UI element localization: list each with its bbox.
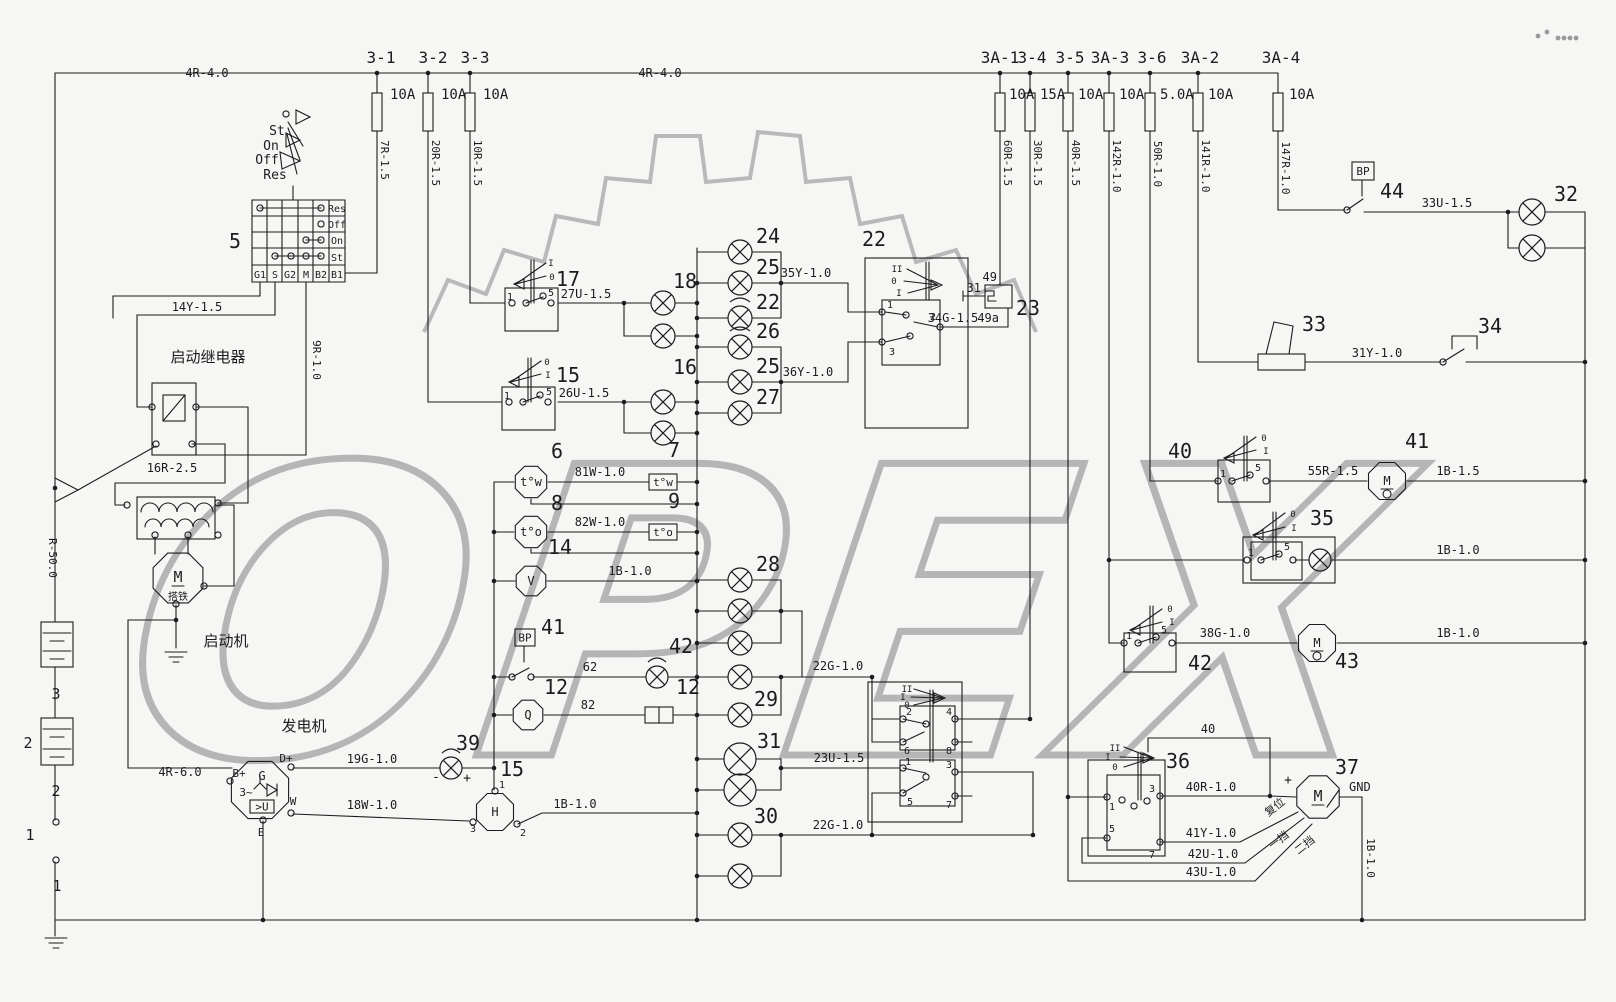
wire-41Y-1.0: 41Y-1.0 bbox=[1186, 826, 1237, 840]
comp-25a: 25 bbox=[756, 255, 780, 279]
svg-text:t°o: t°o bbox=[653, 526, 673, 539]
sw22-I: I bbox=[896, 289, 901, 299]
sw42-I: I bbox=[1169, 618, 1174, 628]
wire-16R-2.5: 16R-2.5 bbox=[147, 461, 198, 475]
comp-26: 26 bbox=[756, 319, 780, 343]
sw42-0: 0 bbox=[1167, 605, 1172, 615]
comp-15sw: 15 bbox=[556, 363, 580, 387]
label-start-relay: 启动继电器 bbox=[170, 348, 245, 366]
wire bbox=[1508, 212, 1519, 248]
fuse bbox=[1104, 73, 1114, 131]
ign-arrow-3 bbox=[280, 152, 300, 169]
wire bbox=[1452, 336, 1477, 349]
tbl-res: Res bbox=[328, 204, 346, 215]
lamp bbox=[1519, 199, 1545, 225]
m37-plus: + bbox=[1284, 773, 1292, 788]
wire-40: 40 bbox=[1201, 722, 1215, 736]
fuse bbox=[423, 73, 433, 131]
junction-dot bbox=[695, 334, 700, 339]
junction-dot bbox=[53, 486, 58, 491]
sw-1: 1 bbox=[52, 877, 61, 895]
junction-dot bbox=[1268, 794, 1273, 799]
ign-pos-res: Res bbox=[263, 168, 286, 183]
junction-dot bbox=[695, 431, 700, 436]
label-ground-strap: 搭铁 bbox=[168, 590, 188, 603]
junction-dot bbox=[1506, 210, 1511, 215]
fuse-3-1-id: 3-1 bbox=[367, 48, 396, 67]
wire-30R-1.5: 30R-1.5 bbox=[1031, 140, 1044, 186]
sw22-pin3: 3 bbox=[889, 347, 895, 358]
fuse bbox=[1273, 73, 1283, 131]
comp-8: 8 bbox=[551, 491, 563, 515]
wire-43U-1.0: 43U-1.0 bbox=[1186, 865, 1237, 879]
sw40-0: 0 bbox=[1261, 434, 1266, 444]
wire-55R-1.5: 55R-1.5 bbox=[1308, 464, 1359, 478]
lamp bbox=[651, 291, 675, 315]
comp-39: 39 bbox=[456, 731, 480, 755]
wire-36Y-1.0: 36Y-1.0 bbox=[783, 365, 834, 379]
horn-base bbox=[1258, 354, 1305, 370]
contact bbox=[540, 293, 546, 299]
junction-dot bbox=[695, 301, 700, 306]
battery-box-3 bbox=[41, 622, 73, 667]
wire-142R-1.0: 142R-1.0 bbox=[1110, 140, 1123, 193]
tbl-s: S bbox=[272, 270, 278, 281]
bat-3: 3 bbox=[51, 685, 60, 703]
junction-dot bbox=[779, 609, 784, 614]
wire bbox=[885, 336, 910, 342]
sw35-I: I bbox=[1291, 524, 1296, 534]
fuse-3A-3-id: 3A-3 bbox=[1091, 48, 1130, 67]
lsw-pin3: 3 bbox=[946, 760, 952, 771]
wire-38G-1.0: 38G-1.0 bbox=[1200, 626, 1251, 640]
gen-e: E bbox=[258, 826, 265, 839]
wire bbox=[904, 281, 938, 285]
junction-dot bbox=[695, 579, 700, 584]
wire-81W-1.0: 81W-1.0 bbox=[575, 465, 626, 479]
sw40-I: I bbox=[1263, 447, 1268, 457]
sw42-pin1: 1 bbox=[1126, 631, 1132, 642]
comp-9: 9 bbox=[668, 489, 680, 513]
contact bbox=[53, 857, 59, 863]
junction-dot bbox=[622, 301, 627, 306]
lamp bbox=[651, 324, 675, 348]
junction-dot bbox=[695, 874, 700, 879]
contact bbox=[283, 111, 289, 117]
wire bbox=[986, 291, 996, 301]
flasher-49a: 49a bbox=[977, 311, 999, 325]
fuse bbox=[995, 73, 1005, 131]
gen-dplus: D+ bbox=[279, 752, 293, 765]
wire-9R-1.0: 9R-1.0 bbox=[310, 340, 323, 380]
wire-27U-1.5: 27U-1.5 bbox=[561, 287, 612, 301]
ground-symbol bbox=[45, 938, 67, 948]
svg-text:M: M bbox=[1383, 474, 1390, 488]
wire-82W-1.0: 82W-1.0 bbox=[575, 515, 626, 529]
comp-44: 44 bbox=[1380, 179, 1404, 203]
comp-41m: 41 bbox=[1405, 429, 1429, 453]
junction-dot bbox=[779, 833, 784, 838]
sw36-II: II bbox=[1110, 744, 1121, 754]
bp-box-44: BP bbox=[1352, 162, 1374, 180]
wire bbox=[345, 131, 377, 273]
lamp bbox=[728, 864, 752, 888]
junction-dot bbox=[1148, 71, 1153, 76]
sw15-pin1: 1 bbox=[504, 391, 510, 402]
fuse-3A-4-rating: 10A bbox=[1289, 87, 1315, 103]
sw42-pin5: 5 bbox=[1161, 625, 1167, 636]
sw36-I: I bbox=[1105, 753, 1110, 763]
fuse-3-3-id: 3-3 bbox=[461, 48, 490, 67]
wire-40R-1.5: 40R-1.5 bbox=[1069, 140, 1082, 186]
comp-29: 29 bbox=[754, 687, 778, 711]
fuse-3-1-rating: 10A bbox=[390, 87, 416, 103]
ign-arrow-1 bbox=[296, 110, 310, 124]
wire bbox=[55, 490, 78, 502]
junction-dot bbox=[695, 551, 700, 556]
wire-33U-1.5: 33U-1.5 bbox=[1422, 196, 1473, 210]
comp-6: 6 bbox=[551, 439, 563, 463]
junction-dot bbox=[1583, 641, 1588, 646]
flasher-31: 31 bbox=[967, 281, 981, 295]
fuse-3A-1-id: 3A-1 bbox=[981, 48, 1020, 67]
sw17-I: I bbox=[548, 259, 553, 269]
comp-43: 43 bbox=[1335, 649, 1359, 673]
lamp39-plus: + bbox=[463, 771, 471, 786]
junction-dot bbox=[870, 833, 875, 838]
wire-35Y-1.0: 35Y-1.0 bbox=[781, 266, 832, 280]
junction-dot bbox=[695, 411, 700, 416]
contact bbox=[548, 300, 554, 306]
tbl-off: Off bbox=[328, 220, 346, 231]
fuse-3A-1-rating: 10A bbox=[1009, 87, 1035, 103]
comp-42sw: 42 bbox=[1188, 651, 1212, 675]
lamp39-minus: - bbox=[432, 770, 440, 785]
junction-dot bbox=[695, 833, 700, 838]
lamp bbox=[728, 240, 752, 264]
wire-R-50.0: R-50.0 bbox=[46, 538, 59, 578]
lsw-pin6: 6 bbox=[904, 746, 910, 757]
junction-dot bbox=[375, 71, 380, 76]
tbl-g2: G2 bbox=[284, 270, 296, 281]
junction-dot bbox=[622, 400, 627, 405]
gauge-box-7: t°w bbox=[649, 474, 677, 490]
comp-22l: 22 bbox=[756, 290, 780, 314]
wire bbox=[1443, 349, 1464, 362]
junction-dot bbox=[695, 641, 700, 646]
wire-60R-1.5: 60R-1.5 bbox=[1001, 140, 1014, 186]
sw17-0: 0 bbox=[549, 273, 554, 283]
lsw-pin5: 5 bbox=[907, 797, 913, 808]
gen-g: G bbox=[258, 769, 265, 783]
junction-dot bbox=[870, 675, 875, 680]
comp-5: 5 bbox=[229, 229, 241, 253]
fuse-3A-2-rating: 10A bbox=[1208, 87, 1234, 103]
junction-dot bbox=[998, 71, 1003, 76]
fuse-3-5-rating: 10A bbox=[1078, 87, 1104, 103]
wire bbox=[624, 303, 651, 336]
comp-12r: 12 bbox=[676, 675, 700, 699]
junction-dot bbox=[695, 757, 700, 762]
sw17-pin5: 5 bbox=[548, 288, 554, 299]
svg-text:t°o: t°o bbox=[520, 525, 542, 539]
junction-dot bbox=[695, 918, 700, 923]
battery-cell bbox=[43, 651, 71, 659]
lamp bbox=[728, 298, 752, 330]
junction-dot bbox=[695, 480, 700, 485]
junction-dot bbox=[1066, 795, 1071, 800]
contact bbox=[53, 819, 59, 825]
wire-26U-1.5: 26U-1.5 bbox=[559, 386, 610, 400]
wire-4R-4.0-a: 4R-4.0 bbox=[185, 66, 228, 80]
wire-19G-1.0: 19G-1.0 bbox=[347, 752, 398, 766]
wire-22G-1.0-a: 22G-1.0 bbox=[813, 659, 864, 673]
comp-15h: 15 bbox=[500, 757, 524, 781]
comp-36: 36 bbox=[1166, 749, 1190, 773]
junction-dot bbox=[261, 918, 266, 923]
wire-50R-1.0: 50R-1.0 bbox=[1151, 141, 1164, 187]
sw36-pin5: 5 bbox=[1109, 824, 1115, 835]
fuse-3-6-rating: 5.0A bbox=[1160, 87, 1194, 103]
sw22-pin1: 1 bbox=[887, 300, 893, 311]
horn-33 bbox=[1266, 322, 1293, 354]
fuse-3A-2-id: 3A-2 bbox=[1181, 48, 1220, 67]
comp-25b: 25 bbox=[756, 354, 780, 378]
junction-dot bbox=[695, 609, 700, 614]
junction-dot bbox=[695, 530, 700, 535]
lsw-pin2: 2 bbox=[906, 707, 912, 718]
sw17-pin1: 1 bbox=[507, 292, 513, 303]
comp-12q: 12 bbox=[544, 675, 568, 699]
wire-62: 62 bbox=[583, 660, 597, 674]
svg-text:t°w: t°w bbox=[520, 475, 542, 489]
fuse-3-6-id: 3-6 bbox=[1138, 48, 1167, 67]
sw36-0: 0 bbox=[1112, 763, 1117, 773]
junction-dot bbox=[1360, 918, 1365, 923]
comp-30: 30 bbox=[754, 804, 778, 828]
fuse bbox=[1193, 73, 1203, 131]
wire-18W-1.0: 18W-1.0 bbox=[347, 798, 398, 812]
comp-18: 18 bbox=[673, 269, 697, 293]
fuse-3-5-id: 3-5 bbox=[1056, 48, 1085, 67]
svg-text:BP: BP bbox=[518, 632, 532, 645]
svg-text:>U: >U bbox=[255, 801, 268, 814]
junction-dot bbox=[695, 380, 700, 385]
sw22-0: 0 bbox=[891, 277, 896, 287]
label-starter: 启动机 bbox=[203, 632, 248, 650]
bat-2-left: 2 bbox=[23, 734, 32, 752]
junction-dot bbox=[695, 316, 700, 321]
h-pin3: 3 bbox=[470, 824, 476, 835]
sw15-pin5: 5 bbox=[546, 387, 552, 398]
battery-cell bbox=[43, 729, 71, 737]
junction-dot bbox=[468, 71, 473, 76]
svg-text:t°w: t°w bbox=[653, 476, 673, 489]
junction-dot bbox=[426, 71, 431, 76]
svg-text:V: V bbox=[527, 574, 534, 588]
ign-pos-on: On bbox=[263, 139, 279, 154]
tbl-m: M bbox=[303, 270, 309, 281]
gauge-box-9: t°o bbox=[649, 524, 677, 540]
junction-dot bbox=[1583, 558, 1588, 563]
comp-37: 37 bbox=[1335, 755, 1359, 779]
svg-text:H: H bbox=[491, 805, 498, 819]
junction-dot bbox=[1196, 71, 1201, 76]
wire-20R-1.5: 20R-1.5 bbox=[429, 140, 442, 186]
comp-7: 7 bbox=[668, 438, 680, 462]
comp-27: 27 bbox=[756, 385, 780, 409]
tbl-on: On bbox=[331, 236, 343, 247]
junction-dot bbox=[779, 380, 784, 385]
wire-34G-1.5: 34G-1.5 bbox=[928, 311, 979, 325]
battery-box-2 bbox=[41, 718, 73, 765]
sw36-pin1: 1 bbox=[1109, 802, 1115, 813]
sw-1-left: 1 bbox=[25, 826, 34, 844]
junction-dot bbox=[1028, 71, 1033, 76]
wire-1B-1.5: 1B-1.5 bbox=[1436, 464, 1479, 478]
wire bbox=[55, 478, 78, 490]
wire-31Y-1.0: 31Y-1.0 bbox=[1352, 346, 1403, 360]
lsw-pin7: 7 bbox=[946, 800, 952, 811]
junction-dot bbox=[1583, 479, 1588, 484]
wire-40R-1.0: 40R-1.0 bbox=[1186, 780, 1237, 794]
fuse-3A-4-id: 3A-4 bbox=[1262, 48, 1301, 67]
label-generator: 发电机 bbox=[281, 717, 326, 735]
fuse-3A-3-rating: 10A bbox=[1119, 87, 1145, 103]
sw35-0: 0 bbox=[1290, 510, 1295, 520]
junction-dot bbox=[779, 675, 784, 680]
junction-dot bbox=[492, 713, 497, 718]
wire bbox=[781, 283, 882, 312]
lsw-pin8: 8 bbox=[946, 746, 952, 757]
junction-dot bbox=[695, 502, 700, 507]
junction-dot bbox=[779, 281, 784, 286]
lamp bbox=[728, 271, 752, 295]
junction-dot bbox=[695, 811, 700, 816]
junction-dot bbox=[1066, 71, 1071, 76]
junction-dot bbox=[174, 618, 179, 623]
sw15-I: I bbox=[545, 371, 550, 381]
comp-32: 32 bbox=[1554, 182, 1578, 206]
wire-1B-1.0-h: 1B-1.0 bbox=[553, 797, 596, 811]
wire-1B-1.0-37: 1B-1.0 bbox=[1364, 838, 1377, 878]
comp-40sw: 40 bbox=[1168, 439, 1192, 463]
junction-dot bbox=[695, 345, 700, 350]
wire-10R-1.5: 10R-1.5 bbox=[471, 140, 484, 186]
fuse bbox=[1145, 73, 1155, 131]
ign-pos-st: St bbox=[269, 124, 285, 139]
sw15-0: 0 bbox=[544, 358, 549, 368]
ign-pos-off: Off bbox=[255, 153, 278, 168]
schematic-page: OPEXt°wt°oBPBP>UMHt°wt°oVQMMM4R-4.04R-4.… bbox=[0, 0, 1616, 1002]
junction-dot bbox=[695, 713, 700, 718]
lsw-pin4: 4 bbox=[946, 707, 952, 718]
svg-text:M: M bbox=[1313, 787, 1322, 805]
tbl-b2: B2 bbox=[315, 270, 327, 281]
junction-dot bbox=[492, 530, 497, 535]
junction-dot bbox=[695, 400, 700, 405]
junction-dot bbox=[492, 766, 497, 771]
battery-cell bbox=[43, 749, 71, 757]
junction-dot bbox=[1031, 833, 1036, 838]
sw22-II: II bbox=[892, 265, 903, 275]
comp-42lamp: 42 bbox=[669, 634, 693, 658]
junction-dot bbox=[492, 675, 497, 680]
watermark-text: OPEX bbox=[101, 384, 1440, 850]
wire-1B-1.0-43: 1B-1.0 bbox=[1436, 626, 1479, 640]
contact bbox=[318, 221, 324, 227]
lsw-pin1: 1 bbox=[905, 757, 911, 768]
svg-text:M: M bbox=[173, 568, 182, 586]
wiring-diagram: OPEXt°wt°oBPBP>UMHt°wt°oVQMMM4R-4.04R-4.… bbox=[0, 0, 1616, 1002]
gen-bplus: B+ bbox=[232, 767, 246, 780]
wire bbox=[907, 269, 938, 285]
bat-2: 2 bbox=[51, 782, 60, 800]
comp-31: 31 bbox=[757, 729, 781, 753]
gen-w: W bbox=[290, 795, 297, 808]
wire-1B-1.0-v: 1B-1.0 bbox=[608, 564, 651, 578]
wire-82: 82 bbox=[581, 698, 595, 712]
fuse bbox=[372, 73, 382, 131]
tbl-st: St bbox=[331, 253, 343, 264]
comp-24: 24 bbox=[756, 224, 780, 248]
fuse bbox=[465, 73, 475, 131]
fuse-3-4-rating: 15A bbox=[1040, 87, 1066, 103]
wire-147R-1.0: 147R-1.0 bbox=[1279, 142, 1292, 195]
junction-dot bbox=[1028, 717, 1033, 722]
comp-35: 35 bbox=[1310, 506, 1334, 530]
comp-28: 28 bbox=[756, 552, 780, 576]
gen-3ph: 3~ bbox=[239, 786, 253, 799]
wire-23U-1.5: 23U-1.5 bbox=[814, 751, 865, 765]
lamp bbox=[1519, 235, 1545, 261]
svg-text:M: M bbox=[1313, 636, 1320, 650]
wire-4R-6.0: 4R-6.0 bbox=[158, 765, 201, 779]
svg-text:Q: Q bbox=[524, 708, 531, 722]
sw40-pin1: 1 bbox=[1220, 469, 1226, 480]
lamp bbox=[728, 327, 752, 359]
comp-34: 34 bbox=[1478, 314, 1502, 338]
wire-141R-1.0: 141R-1.0 bbox=[1199, 140, 1212, 193]
fuse-3-2-rating: 10A bbox=[441, 87, 467, 103]
junction-dot bbox=[492, 579, 497, 584]
sw36-pin3: 3 bbox=[1149, 784, 1155, 795]
tbl-g1: G1 bbox=[254, 270, 266, 281]
wire-4R-4.0-b: 4R-4.0 bbox=[638, 66, 681, 80]
comp-23: 23 bbox=[1016, 296, 1040, 320]
fuse-3-3-rating: 10A bbox=[483, 87, 509, 103]
wire bbox=[511, 374, 541, 382]
junction-dot bbox=[1107, 558, 1112, 563]
sw40-pin5: 5 bbox=[1255, 463, 1261, 474]
fuse-3-4-id: 3-4 bbox=[1018, 48, 1047, 67]
comp-14: 14 bbox=[548, 535, 572, 559]
battery-cell bbox=[43, 633, 71, 641]
h-pin2: 2 bbox=[520, 828, 526, 839]
junction-dot bbox=[1107, 71, 1112, 76]
wire-14Y-1.5: 14Y-1.5 bbox=[172, 300, 223, 314]
sw36-pin7: 7 bbox=[1149, 850, 1155, 861]
junction-dot bbox=[695, 788, 700, 793]
m37-gnd: GND bbox=[1349, 780, 1371, 794]
comp-41bp: 41 bbox=[541, 615, 565, 639]
h-pin1: 1 bbox=[499, 780, 505, 791]
wire-22G-1.0-b: 22G-1.0 bbox=[813, 818, 864, 832]
comp-16: 16 bbox=[673, 355, 697, 379]
comp-22sw: 22 bbox=[862, 227, 886, 251]
junction-dot bbox=[779, 766, 784, 771]
sw35-pin5: 5 bbox=[1284, 542, 1290, 553]
